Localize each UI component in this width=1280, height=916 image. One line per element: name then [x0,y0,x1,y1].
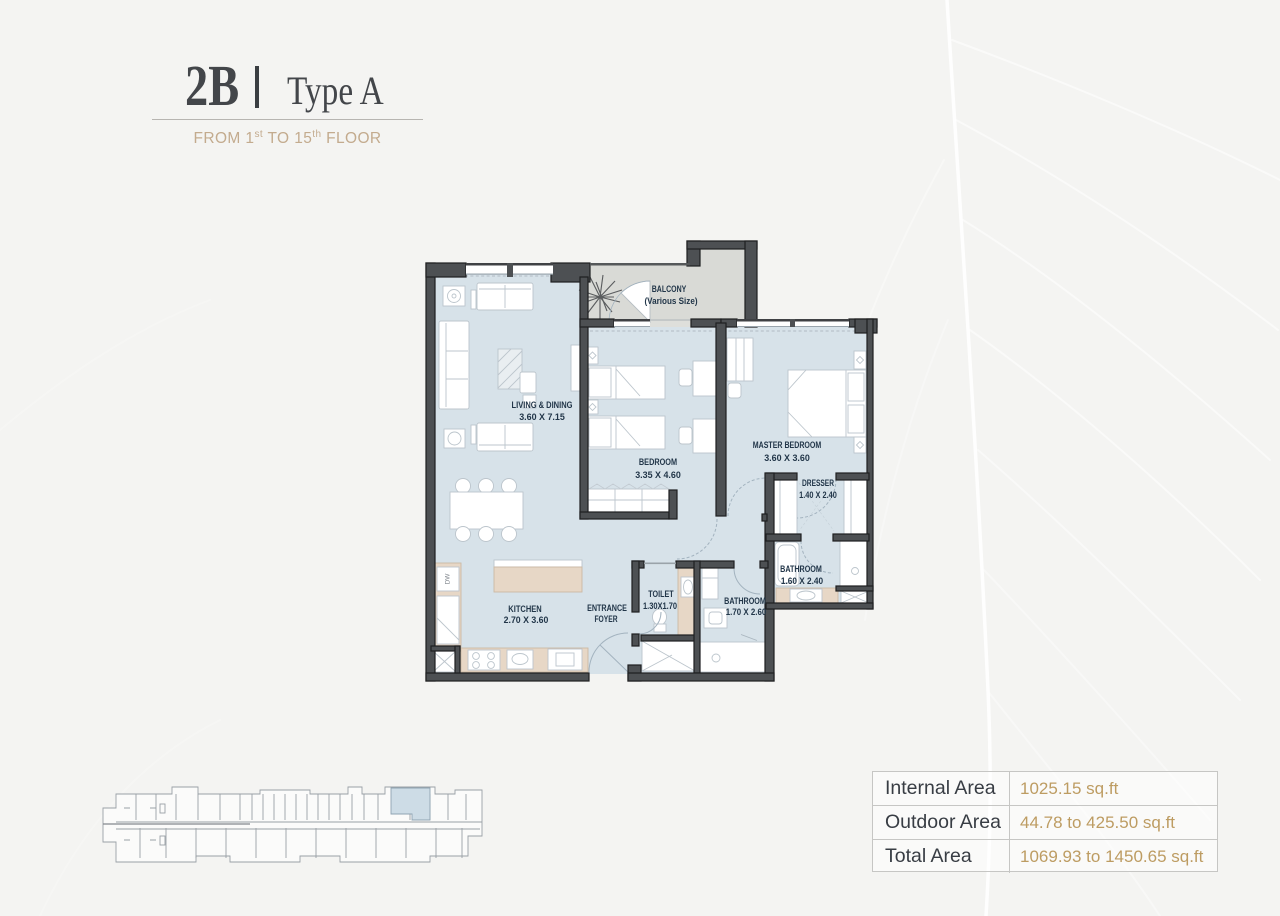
svg-text:BATHROOM: BATHROOM [724,596,766,606]
svg-text:3.35 X 4.60: 3.35 X 4.60 [635,470,681,480]
svg-text:FOYER: FOYER [594,614,617,624]
svg-text:KITCHEN: KITCHEN [508,603,541,614]
svg-text:(Various Size): (Various Size) [644,296,697,307]
svg-text:3.60 X 7.15: 3.60 X 7.15 [519,412,565,422]
svg-text:BALCONY: BALCONY [652,284,687,294]
svg-text:DW: DW [445,573,452,585]
svg-text:1.40 X 2.40: 1.40 X 2.40 [799,490,837,500]
svg-text:1.60 X 2.40: 1.60 X 2.40 [781,576,823,586]
svg-text:2.70 X 3.60: 2.70 X 3.60 [504,615,549,625]
svg-text:1.70 X 2.60: 1.70 X 2.60 [726,607,767,618]
svg-text:DRESSER: DRESSER [802,478,834,488]
svg-text:MASTER BEDROOM: MASTER BEDROOM [753,439,822,450]
svg-text:1.30X1.70: 1.30X1.70 [643,601,677,611]
svg-text:3.60 X 3.60: 3.60 X 3.60 [764,453,810,463]
svg-text:BATHROOM: BATHROOM [780,564,822,574]
svg-text:LIVING & DINING: LIVING & DINING [512,399,573,410]
svg-text:BEDROOM: BEDROOM [639,456,677,467]
svg-text:ENTRANCE: ENTRANCE [587,603,627,613]
svg-text:TOILET: TOILET [648,589,673,599]
